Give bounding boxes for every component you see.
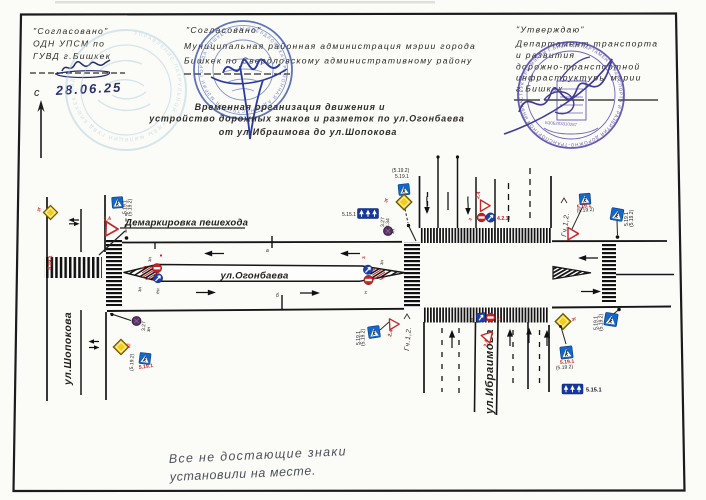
svg-text:2.4: 2.4: [483, 339, 490, 347]
svg-text:зн: зн: [137, 286, 143, 292]
svg-text:с: с: [34, 87, 40, 99]
svg-text:а: а: [266, 248, 269, 254]
svg-text:(5.19.2): (5.19.2): [128, 198, 134, 216]
svg-text:5.19.1: 5.19.1: [47, 255, 54, 270]
svg-text:(5.19.2): (5.19.2): [556, 364, 574, 372]
svg-text:2.4: 2.4: [475, 191, 482, 199]
svg-text:ГУВД г.Бишкек: ГУВД г.Бишкек: [33, 51, 111, 61]
svg-text:от ул.Ибраимова до ул.Шопокова: от ул.Ибраимова до ул.Шопокова: [219, 127, 397, 137]
svg-text:Все не достающие знаки: Все не достающие знаки: [169, 444, 348, 466]
svg-text:(5.19.2): (5.19.2): [361, 328, 367, 346]
svg-text:з: з: [467, 217, 474, 222]
svg-text:(5.19.2): (5.19.2): [129, 353, 136, 371]
svg-text:"Утверждаю": "Утверждаю": [516, 25, 585, 35]
svg-text:зн: зн: [469, 317, 475, 323]
svg-text:(5.19.2): (5.19.2): [577, 207, 595, 215]
svg-text:ен: ен: [155, 288, 161, 294]
svg-text:зн: зн: [390, 228, 396, 234]
svg-text:зн: зн: [146, 327, 152, 332]
svg-text:4.2.1!: 4.2.1!: [497, 216, 511, 222]
svg-text:б: б: [276, 293, 279, 299]
svg-text:Бишкек по Свердловскому админи: Бишкек по Свердловскому административном…: [184, 56, 473, 66]
svg-text:зг: зг: [36, 206, 43, 213]
svg-text:5.15.1: 5.15.1: [342, 212, 356, 218]
svg-text:5.19.1: 5.19.1: [138, 363, 153, 371]
svg-text:Гч.1,2.: Гч.1,2.: [404, 326, 413, 351]
svg-text:2.4: 2.4: [387, 329, 395, 338]
svg-text:з: з: [361, 256, 367, 260]
svg-text:5.19.1: 5.19.1: [395, 174, 409, 180]
svg-text:устройство дорожных знаков и р: устройство дорожных знаков и разметок по…: [148, 114, 464, 124]
svg-text:Б30Б203310287: Б30Б203310287: [545, 120, 578, 127]
svg-text:Муниципальная районная админис: Муниципальная районная администрация мэр…: [184, 41, 476, 51]
svg-text:зг: зг: [571, 316, 578, 323]
svg-text:зн: зн: [379, 259, 385, 265]
svg-text:(5.19.2): (5.19.2): [629, 209, 635, 227]
svg-text:н: н: [363, 291, 369, 295]
svg-text:Временная организация движения: Временная организация движения и: [195, 102, 386, 112]
svg-text:зг: зг: [383, 197, 390, 204]
svg-text:х!: х!: [126, 343, 132, 348]
svg-text:Демаркировка пешехода: Демаркировка пешехода: [124, 218, 249, 229]
svg-text:ул.Огонбаева: ул.Огонбаева: [220, 271, 289, 282]
svg-text:установили на месте.: установили на месте.: [169, 464, 317, 484]
svg-text:(5.19.2): (5.19.2): [599, 313, 605, 331]
svg-text:"Согласовано": "Согласовано": [33, 26, 108, 36]
svg-text:5.15.1: 5.15.1: [586, 388, 602, 394]
svg-text:зн: зн: [147, 256, 153, 262]
svg-text:ул.Шопокова: ул.Шопокова: [62, 312, 74, 386]
